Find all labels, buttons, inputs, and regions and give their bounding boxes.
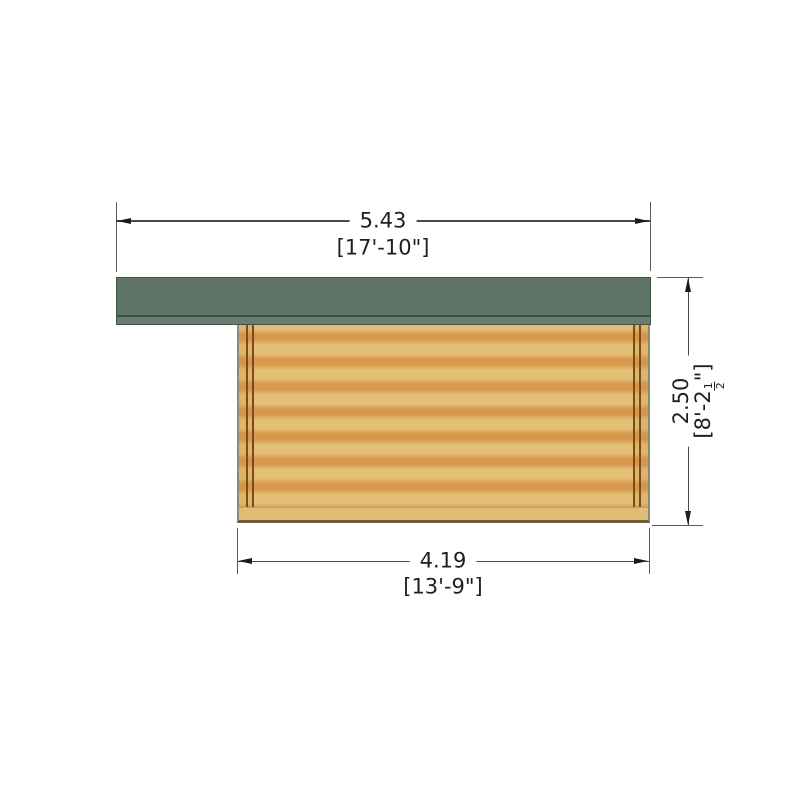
corner-post-line-icon xyxy=(252,325,254,520)
extension-line xyxy=(650,202,652,271)
extension-line xyxy=(649,528,651,574)
wall-height-label-group: 2.50 [8'-212"] xyxy=(668,355,728,446)
arrow-down-icon xyxy=(685,511,691,525)
roof-panel xyxy=(116,277,651,325)
extension-line xyxy=(116,202,118,272)
arrow-right-icon xyxy=(635,218,649,224)
wall-height-metric-label: 2.50 xyxy=(670,363,692,438)
wall-base-board xyxy=(239,507,648,520)
corner-post-line-icon xyxy=(633,325,635,520)
wall-height-imperial-label: [8'-212"] xyxy=(692,363,726,438)
roof-fascia-board xyxy=(117,315,650,324)
arrow-left-icon xyxy=(117,218,131,224)
wall-width-metric-label: 4.19 xyxy=(410,548,477,575)
fraction-half: 12 xyxy=(703,381,726,390)
extension-line xyxy=(657,277,703,279)
fraction-denominator: 2 xyxy=(715,381,726,390)
arrow-right-icon xyxy=(634,558,648,564)
extension-line xyxy=(237,528,239,574)
imperial-suffix: "] xyxy=(691,363,715,381)
log-wall xyxy=(237,325,650,523)
extension-line xyxy=(652,525,703,527)
wall-width-imperial-label: [13'-9"] xyxy=(403,577,482,598)
arrow-left-icon xyxy=(238,558,252,564)
corner-post-line-icon xyxy=(639,325,641,520)
arrow-up-icon xyxy=(685,278,691,292)
imperial-prefix: [8'-2 xyxy=(691,390,715,438)
overall-width-imperial-label: [17'-10"] xyxy=(337,238,430,259)
corner-post-line-icon xyxy=(246,325,248,520)
overall-width-metric-label: 5.43 xyxy=(350,208,417,235)
elevation-drawing: 5.43 [17'-10"] 4.19 [13'-9"] 2.50 [8'-21… xyxy=(0,0,800,800)
